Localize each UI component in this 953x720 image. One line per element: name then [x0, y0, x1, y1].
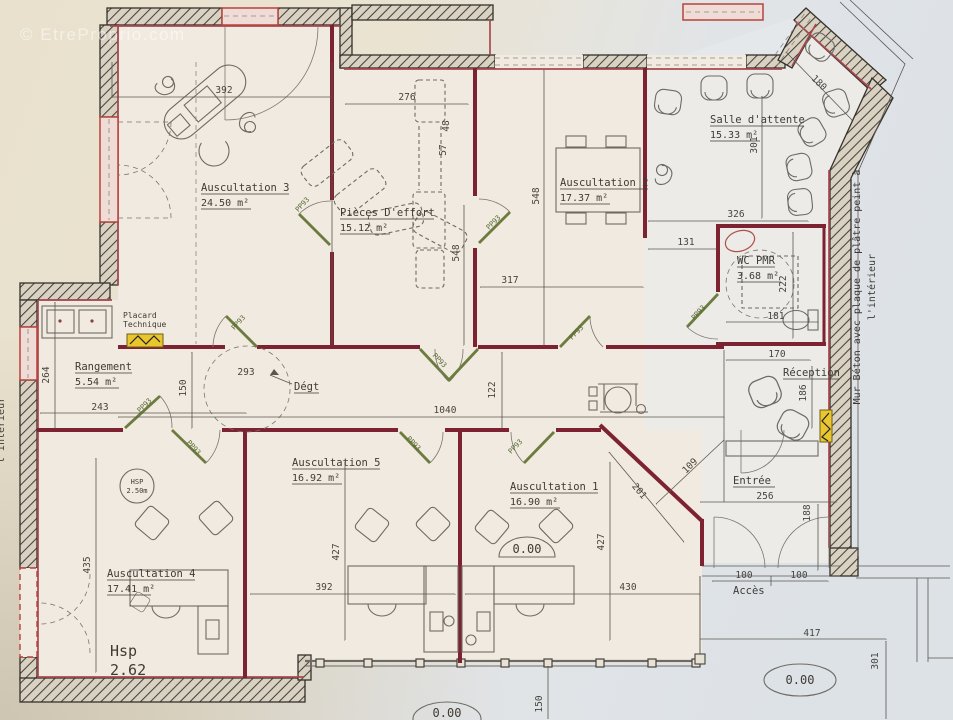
door-bay-left — [20, 568, 37, 657]
room-name: WC PMR — [737, 255, 776, 267]
room-area: 24.50 m² — [201, 198, 249, 209]
dim: 1040 — [434, 405, 457, 416]
room-name: Entrée — [733, 475, 771, 487]
room-name: Auscultation 1 — [510, 481, 599, 493]
wall-left-lower-a — [20, 300, 37, 327]
dim: 548 — [531, 187, 542, 204]
dim: 435 — [82, 556, 93, 573]
placard-technique-marker — [127, 334, 163, 347]
room-area: 16.90 m² — [510, 497, 558, 508]
room-name: Auscultation 5 — [292, 457, 381, 469]
watermark: © EtreProprio.com — [20, 25, 186, 44]
dim: 293 — [237, 367, 254, 378]
dim: 276 — [398, 92, 415, 103]
room-area: 3.68 m² — [737, 271, 779, 282]
wall-bottom-left — [20, 678, 305, 702]
level-value: 0.00 — [433, 706, 462, 720]
dim: 186 — [798, 384, 809, 401]
wall-top-neighbor — [352, 5, 493, 20]
room-name: Rangement — [75, 361, 132, 373]
wall-left-lower-c — [20, 657, 37, 680]
opening-gap — [647, 55, 746, 68]
wall-left-step — [20, 283, 110, 300]
drain-icon — [58, 319, 61, 322]
opening-top-1 — [495, 55, 583, 68]
dim: 256 — [756, 491, 773, 502]
room-label-reception: Réception — [783, 367, 840, 379]
wall-left-upper-b — [100, 222, 118, 285]
dim: 181 — [767, 311, 784, 322]
room-label-acces: Accès — [733, 585, 765, 597]
hsp-circle-value: 2.50m — [126, 487, 147, 495]
hsp-circle-label: HSP — [131, 478, 144, 486]
dim: 100 — [735, 570, 752, 581]
hsp-value: 2.62 — [110, 661, 146, 679]
dim: 170 — [768, 349, 785, 360]
opening-top-2 — [647, 55, 746, 68]
room-name: Salle d'attente — [710, 114, 805, 126]
dim: 243 — [91, 402, 108, 413]
dim: 427 — [596, 533, 607, 550]
room-area: 15.12 m² — [340, 223, 388, 234]
dim: 222 — [778, 275, 789, 292]
wall-top-b1 — [340, 55, 495, 68]
dim: 131 — [677, 237, 694, 248]
opening-gap — [495, 55, 583, 68]
dim: 392 — [315, 582, 332, 593]
dim: 301 — [749, 136, 760, 153]
dim: 57 — [438, 144, 449, 155]
room-name: Auscultation 2 — [560, 177, 649, 189]
level-value: 0.00 — [513, 542, 542, 556]
placard-line1: Placard — [123, 311, 157, 320]
dim: 548 — [451, 244, 462, 261]
wall-left-lower-b — [20, 380, 37, 568]
wall-right-corner — [830, 548, 858, 576]
room-name: Auscultation 4 — [107, 568, 196, 580]
hsp-label: Hsp — [110, 642, 137, 660]
dim: 264 — [41, 366, 52, 383]
dim: 188 — [802, 504, 813, 521]
floor-plan: 0.00 0.00 0.00 Auscultation 3 24.50 m² P… — [0, 0, 953, 720]
dim: 427 — [331, 543, 342, 560]
window-top — [222, 8, 278, 25]
room-name: Réception — [783, 367, 840, 379]
room-name: Dégt — [294, 381, 319, 393]
drain-icon — [90, 319, 93, 322]
dim: 122 — [487, 381, 498, 398]
room-name: Auscultation 3 — [201, 182, 290, 194]
level-value: 0.00 — [786, 673, 815, 687]
left-note-fragment: l'intérieur — [0, 397, 7, 463]
post — [695, 654, 705, 664]
dim: 430 — [619, 582, 636, 593]
dim: 301 — [870, 652, 881, 669]
room-label-degt: Dégt — [294, 381, 319, 393]
window-left-mid — [20, 327, 37, 380]
room-area: 5.54 m² — [75, 377, 117, 388]
dim: 317 — [501, 275, 518, 286]
dim: 150 — [178, 379, 189, 396]
dim: 100 — [790, 570, 807, 581]
floor-plan-photo: 0.00 0.00 0.00 Auscultation 3 24.50 m² P… — [0, 0, 953, 720]
room-area: 16.92 m² — [292, 473, 340, 484]
room-label-entree: Entrée — [733, 475, 775, 487]
wall-top-left-a — [107, 8, 222, 25]
wall-note-line2: l'intérieur — [866, 254, 878, 320]
dim: 48 — [441, 120, 452, 132]
dim: 326 — [727, 209, 744, 220]
dim: 392 — [215, 85, 232, 96]
room-area: 17.41 m² — [107, 584, 155, 595]
room-area: 17.37 m² — [560, 193, 608, 204]
wall-note-line1: Mur Béton avec plaque de plâtre peint à — [851, 170, 863, 405]
wall-top-b2 — [583, 55, 647, 68]
dim: 150 — [534, 695, 545, 712]
room-name: Pièces D'effort — [340, 207, 435, 219]
placard-line2: Technique — [123, 320, 167, 329]
dim: 417 — [803, 628, 820, 639]
